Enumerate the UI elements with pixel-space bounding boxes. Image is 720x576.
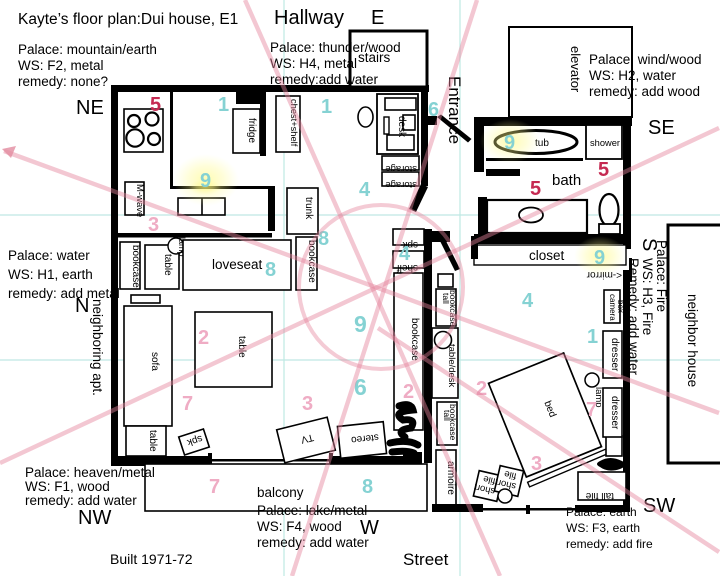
svg-text:3: 3 [531, 453, 542, 475]
svg-text:7: 7 [182, 393, 193, 415]
svg-text:bath: bath [552, 172, 581, 189]
svg-text:dresser: dresser [609, 396, 620, 430]
svg-text:Built 1971-72: Built 1971-72 [110, 551, 193, 567]
svg-text:WS: H3, Fire: WS: H3, Fire [640, 258, 655, 335]
svg-text:3: 3 [302, 393, 313, 415]
svg-text:Remedy: add water: Remedy: add water [626, 258, 641, 376]
svg-text:box: box [616, 300, 625, 313]
svg-text:9: 9 [200, 170, 211, 192]
svg-text:WS: H4, metal: WS: H4, metal [270, 56, 357, 71]
svg-text:4: 4 [359, 179, 371, 201]
svg-text:trunk: trunk [303, 197, 314, 220]
svg-text:fridge: fridge [246, 118, 257, 143]
svg-text:Palace: earth: Palace: earth [566, 505, 637, 519]
svg-text:sofa: sofa [149, 352, 160, 371]
svg-text:WS: F2, metal: WS: F2, metal [18, 58, 104, 73]
svg-text:table: table [162, 254, 173, 276]
svg-text:Palace: heaven/metal: Palace: heaven/metal [25, 465, 155, 480]
svg-text:9: 9 [504, 132, 515, 154]
svg-text:NE: NE [76, 97, 104, 119]
svg-text:remedy: add water: remedy: add water [25, 493, 137, 508]
svg-text:Hallway: Hallway [274, 7, 344, 29]
svg-text:5: 5 [530, 178, 541, 200]
svg-text:4: 4 [522, 290, 534, 312]
svg-text:8: 8 [362, 476, 373, 498]
svg-text:shower: shower [590, 138, 620, 148]
svg-text:WS: F1, wood: WS: F1, wood [25, 479, 110, 494]
svg-text:W: W [360, 517, 379, 539]
svg-text:camera: camera [608, 294, 617, 321]
svg-text:Palace: wind/wood: Palace: wind/wood [589, 52, 702, 67]
svg-text:bookcase: bookcase [130, 245, 141, 288]
svg-text:9: 9 [354, 311, 367, 337]
svg-text:remedy:add water: remedy:add water [270, 72, 379, 87]
svg-text:NW: NW [78, 507, 111, 529]
svg-text:Kayte’s floor plan:Dui house,: Kayte’s floor plan:Dui house, E1 [18, 11, 238, 28]
svg-text:storage: storage [385, 179, 417, 190]
svg-text:neighboring apt.: neighboring apt. [90, 299, 105, 396]
svg-text:remedy: add fire: remedy: add fire [566, 537, 653, 551]
svg-text:WS: H2, water: WS: H2, water [589, 68, 677, 83]
svg-text:Palace: water: Palace: water [8, 248, 90, 263]
svg-text:stairs: stairs [358, 50, 391, 65]
svg-text:dresser: dresser [609, 338, 620, 372]
svg-text:remedy: add water: remedy: add water [257, 535, 369, 550]
svg-text:7: 7 [209, 476, 220, 498]
svg-text:WS: H1, earth: WS: H1, earth [8, 267, 93, 282]
svg-text:tall file: tall file [585, 490, 614, 501]
svg-text:bookcase: bookcase [448, 404, 458, 441]
svg-text:WS: F3, earth: WS: F3, earth [566, 521, 640, 535]
svg-text:loveseat: loveseat [212, 257, 263, 272]
svg-text:3: 3 [148, 214, 159, 236]
svg-text:Street: Street [403, 550, 449, 569]
svg-text:2: 2 [403, 381, 414, 403]
svg-text:2: 2 [198, 327, 209, 349]
svg-text:4: 4 [399, 243, 411, 265]
svg-text:9: 9 [594, 247, 605, 269]
svg-text:1: 1 [218, 94, 229, 116]
svg-text:1: 1 [321, 96, 332, 118]
svg-text:remedy: none?: remedy: none? [18, 74, 108, 89]
svg-text:1: 1 [587, 326, 598, 348]
svg-text:balcony: balcony [257, 485, 304, 500]
svg-text:5: 5 [150, 94, 161, 116]
svg-text:7: 7 [586, 399, 597, 421]
svg-text:Palace: mountain/earth: Palace: mountain/earth [18, 42, 157, 57]
svg-text:SE: SE [648, 117, 675, 139]
svg-text:neighbor house: neighbor house [685, 294, 700, 387]
svg-text:WS: F4, wood: WS: F4, wood [257, 519, 342, 534]
svg-text:8: 8 [265, 259, 276, 281]
svg-text:closet: closet [529, 248, 565, 263]
svg-text:N: N [75, 295, 89, 317]
svg-text:E: E [371, 7, 384, 29]
svg-text:table: table [147, 430, 158, 452]
svg-text:S: S [638, 238, 660, 251]
svg-text:elevator: elevator [568, 46, 583, 93]
svg-text:desk: desk [396, 116, 407, 138]
svg-text:remedy: add wood: remedy: add wood [589, 84, 700, 99]
